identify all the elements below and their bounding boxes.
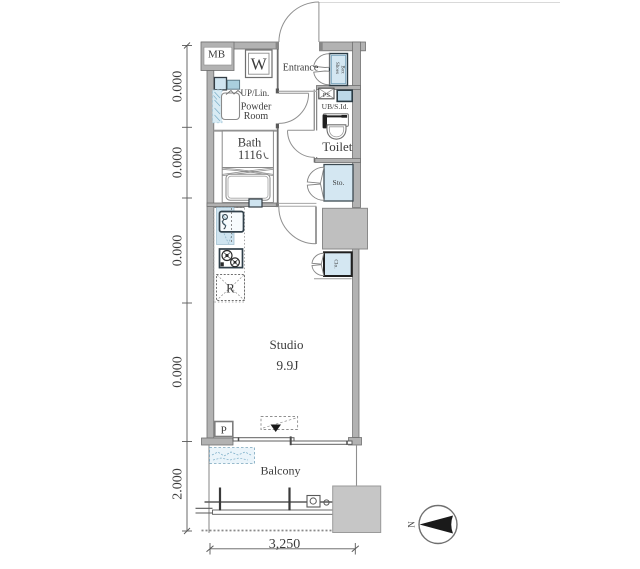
svg-text:N: N — [407, 521, 417, 528]
svg-text:UB/S.Id.: UB/S.Id. — [322, 102, 349, 111]
svg-text:0.000: 0.000 — [171, 235, 186, 267]
svg-text:P: P — [221, 425, 227, 437]
svg-text:1116: 1116 — [238, 148, 262, 162]
svg-text:2.000: 2.000 — [171, 468, 186, 500]
svg-text:0.000: 0.000 — [171, 356, 186, 388]
svg-text:MB: MB — [208, 49, 225, 61]
svg-text:0.000: 0.000 — [171, 71, 186, 103]
svg-text:Entrance: Entrance — [283, 62, 319, 73]
svg-text:Box: Box — [340, 65, 345, 74]
svg-text:Shoes: Shoes — [334, 62, 339, 74]
svg-text:Studio: Studio — [270, 337, 304, 352]
svg-text:Room: Room — [244, 111, 269, 122]
svg-text:9.9J: 9.9J — [276, 358, 298, 373]
svg-text:3,250: 3,250 — [269, 537, 301, 552]
svg-text:UP/Lin.: UP/Lin. — [241, 88, 270, 98]
svg-text:Toilet: Toilet — [322, 139, 353, 154]
svg-text:Sto.: Sto. — [333, 178, 345, 187]
svg-text:W: W — [251, 55, 268, 74]
svg-text:0.000: 0.000 — [171, 147, 186, 179]
svg-text:PS: PS — [323, 92, 331, 99]
svg-text:R: R — [226, 281, 235, 296]
svg-text:Clo.: Clo. — [333, 259, 339, 269]
svg-text:Balcony: Balcony — [261, 464, 301, 478]
